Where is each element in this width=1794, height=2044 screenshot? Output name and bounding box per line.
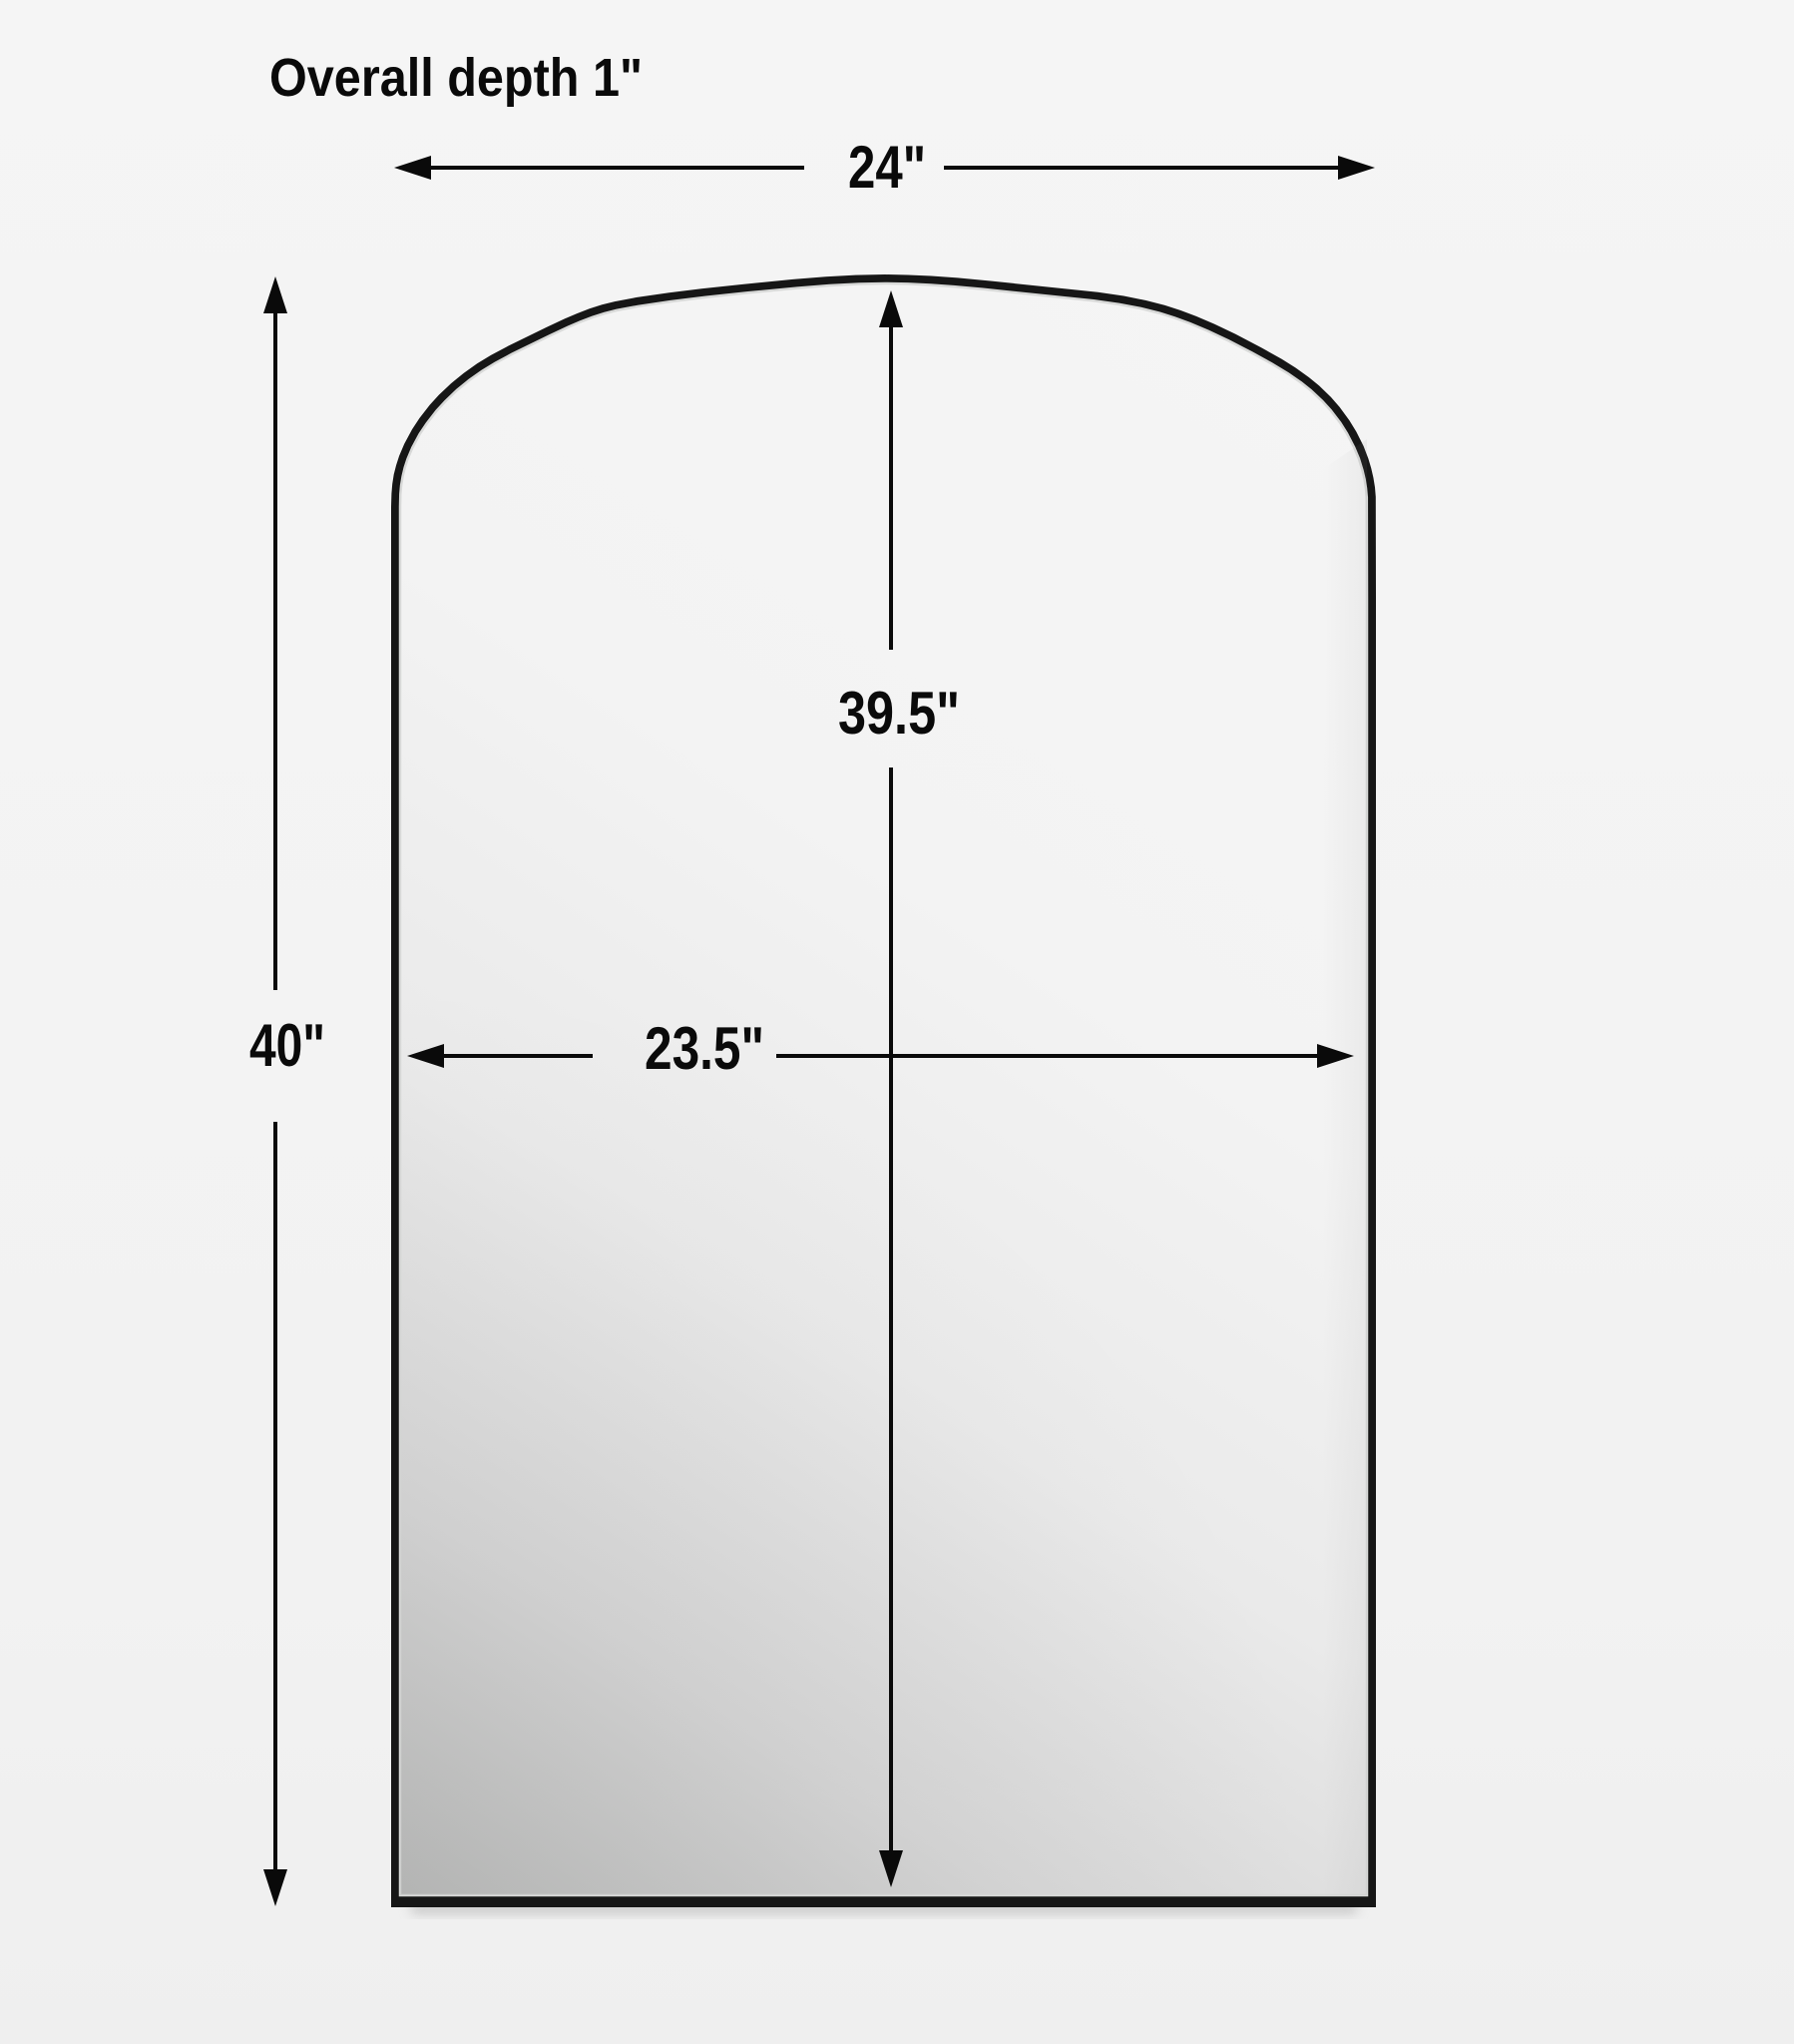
- svg-text:Overall depth 1": Overall depth 1": [269, 48, 643, 108]
- svg-text:40": 40": [249, 1012, 325, 1079]
- svg-text:23.5": 23.5": [645, 1015, 764, 1082]
- svg-text:24": 24": [848, 134, 926, 201]
- svg-text:39.5": 39.5": [838, 680, 960, 747]
